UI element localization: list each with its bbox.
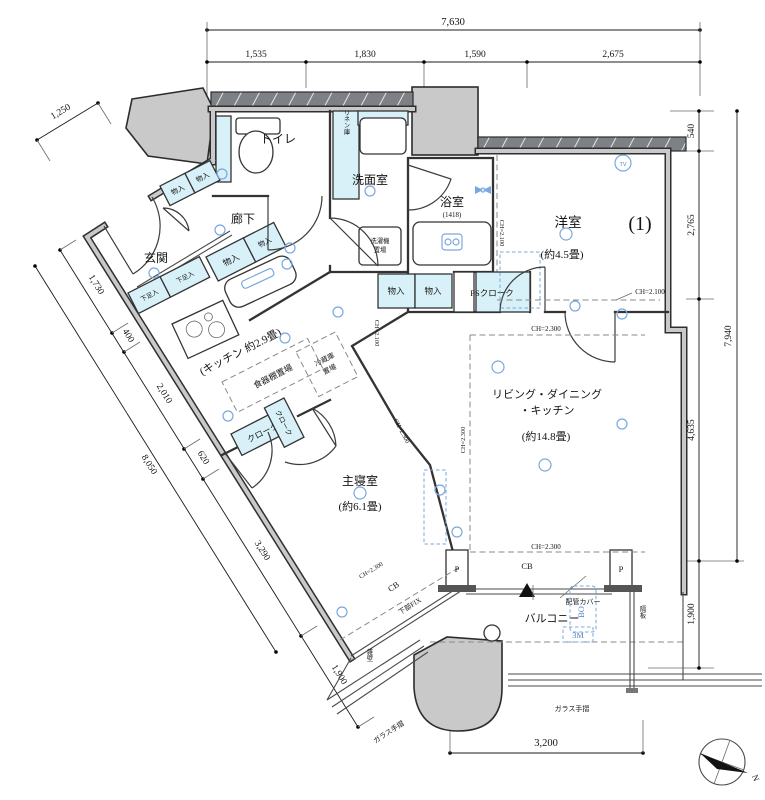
label-bath: 浴室 bbox=[440, 194, 464, 209]
svg-text:CH=2.100: CH=2.100 bbox=[498, 220, 505, 246]
light-icon bbox=[354, 487, 366, 499]
svg-text:隔板: 隔板 bbox=[639, 604, 646, 619]
light-icon bbox=[337, 607, 347, 617]
light-icon bbox=[570, 301, 580, 311]
svg-text:BO: BO bbox=[576, 606, 586, 618]
svg-text:配管カバー: 配管カバー bbox=[566, 597, 601, 606]
outlet-icon bbox=[452, 527, 462, 537]
dim-left-3290: 3,290 bbox=[252, 539, 272, 563]
dim-left-1250: 1,250 bbox=[49, 102, 73, 122]
wall-stub-left bbox=[438, 585, 476, 592]
label-western-size: (約4.5畳) bbox=[540, 247, 583, 261]
dim-top-2: 1,830 bbox=[354, 50, 376, 60]
label-bedroom-size: (約6.1畳) bbox=[338, 499, 381, 513]
windows-and-balcony bbox=[327, 550, 762, 714]
light-icon bbox=[223, 411, 233, 421]
svg-text:CH=2.300: CH=2.300 bbox=[460, 427, 467, 453]
toilet-side-shelf bbox=[216, 116, 231, 182]
svg-text:洗濯機: 洗濯機 bbox=[371, 236, 391, 245]
svg-text:P: P bbox=[619, 564, 624, 574]
partition-base bbox=[626, 688, 638, 693]
floor-plan-drawing: 7,630 1,535 1,830 1,590 2,675 540 2,765 … bbox=[0, 0, 765, 800]
label-western-no: (1) bbox=[628, 213, 651, 235]
svg-text:物入: 物入 bbox=[387, 286, 405, 296]
light-icon bbox=[285, 243, 295, 253]
light-icon bbox=[365, 186, 375, 196]
dim-left-1730: 1,730 bbox=[86, 273, 106, 297]
dim-right-1: 540 bbox=[687, 124, 697, 139]
room-labels: トイレ リネン庫 洗面室 浴室 (1418) 洋室 (1) (約4.5畳) 廊下… bbox=[144, 109, 652, 625]
svg-text:CB: CB bbox=[521, 561, 533, 571]
outlet-icon bbox=[617, 309, 627, 319]
dim-top-total: 7,630 bbox=[441, 17, 465, 28]
label-western-room: 洋室 bbox=[555, 214, 582, 230]
svg-text:CH=2.300: CH=2.300 bbox=[531, 325, 561, 333]
label-entrance: 玄関 bbox=[144, 250, 168, 265]
label-ldk-1: リビング・ダイニング bbox=[492, 387, 602, 401]
shower-icon bbox=[475, 186, 491, 194]
svg-text:CH=2.100: CH=2.100 bbox=[373, 320, 380, 346]
dim-left-2010: 2,010 bbox=[154, 382, 174, 406]
pillar-top-left bbox=[126, 88, 214, 164]
compass-north-label: N bbox=[750, 773, 762, 782]
light-icon bbox=[215, 225, 225, 235]
outlet-icon bbox=[617, 419, 627, 429]
vanity-fixture bbox=[358, 111, 408, 154]
label-toilet: トイレ bbox=[260, 132, 296, 146]
svg-text:雑壁: 雑壁 bbox=[366, 647, 373, 661]
svg-text:CH=2.300: CH=2.300 bbox=[358, 561, 384, 581]
dim-right-total: 7,940 bbox=[724, 325, 734, 347]
pillar-drain-circle bbox=[484, 625, 500, 641]
label-bedroom: 主寝室 bbox=[342, 473, 378, 488]
ps-cloak-label: PSクローク bbox=[470, 288, 513, 298]
bathtub bbox=[413, 222, 491, 265]
label-balcony: バルコニー bbox=[525, 612, 580, 625]
fixtures: 洗濯機 置場 物入 物入 PSクローク 物入 物入 物入 物入 下足入 下足入 bbox=[128, 111, 540, 544]
light-icon bbox=[492, 361, 504, 373]
svg-text:食器棚置場: 食器棚置場 bbox=[252, 362, 295, 390]
compass: N bbox=[693, 733, 762, 792]
svg-text:3M: 3M bbox=[572, 630, 584, 640]
svg-text:CH=2.100: CH=2.100 bbox=[635, 288, 665, 296]
dim-right-3: 4,635 bbox=[687, 419, 697, 441]
dim-left-400: 400 bbox=[120, 327, 136, 345]
svg-text:ガラス手摺: ガラス手摺 bbox=[555, 704, 590, 713]
tv-outlet-icon: TV bbox=[615, 155, 631, 171]
svg-text:下部FIX: 下部FIX bbox=[397, 595, 423, 616]
svg-text:CH=2.300: CH=2.300 bbox=[392, 418, 411, 445]
dim-right-2: 2,765 bbox=[687, 214, 697, 236]
svg-text:P: P bbox=[455, 564, 460, 574]
svg-text:TV: TV bbox=[619, 162, 626, 168]
svg-text:CH=2.300: CH=2.300 bbox=[531, 543, 561, 551]
svg-text:CB: CB bbox=[386, 579, 401, 594]
dim-left-total: 8,050 bbox=[139, 453, 159, 477]
closet-row-upper: 物入 物入 bbox=[160, 161, 220, 206]
label-bath-size: (1418) bbox=[443, 211, 462, 219]
dim-left-620: 620 bbox=[195, 449, 211, 467]
dimension-left: 1,250 1,730 400 2,010 620 3,290 1,900 8,… bbox=[33, 101, 374, 729]
dim-bottom-3200: 3,200 bbox=[534, 738, 558, 749]
dim-right-4: 1,900 bbox=[687, 603, 697, 625]
fridge-space: 冷蔵庫 置場 bbox=[296, 332, 358, 397]
pillar-top-middle bbox=[412, 87, 478, 155]
light-icon bbox=[539, 459, 551, 471]
svg-text:物入: 物入 bbox=[424, 286, 442, 296]
label-linen: リネン庫 bbox=[343, 109, 350, 135]
dim-top-3: 1,590 bbox=[464, 50, 486, 60]
label-ldk-size: (約14.8畳) bbox=[522, 429, 571, 443]
pillar-bottom bbox=[414, 637, 502, 731]
dim-top-4: 2,675 bbox=[602, 50, 624, 60]
dimension-top: 7,630 1,535 1,830 1,590 2,675 bbox=[205, 17, 702, 96]
wall-stub-right bbox=[604, 585, 642, 592]
svg-text:ガラス手摺: ガラス手摺 bbox=[372, 719, 406, 746]
label-washroom: 洗面室 bbox=[352, 172, 388, 187]
light-icon bbox=[333, 307, 343, 317]
dimension-right: 540 2,765 4,635 1,900 7,940 bbox=[648, 109, 744, 670]
label-hallway: 廊下 bbox=[231, 211, 255, 226]
dim-top-1: 1,535 bbox=[245, 50, 267, 60]
label-ldk-2: ・キッチン bbox=[520, 404, 575, 417]
floor-plan-page: 7,630 1,535 1,830 1,590 2,675 540 2,765 … bbox=[0, 0, 765, 800]
